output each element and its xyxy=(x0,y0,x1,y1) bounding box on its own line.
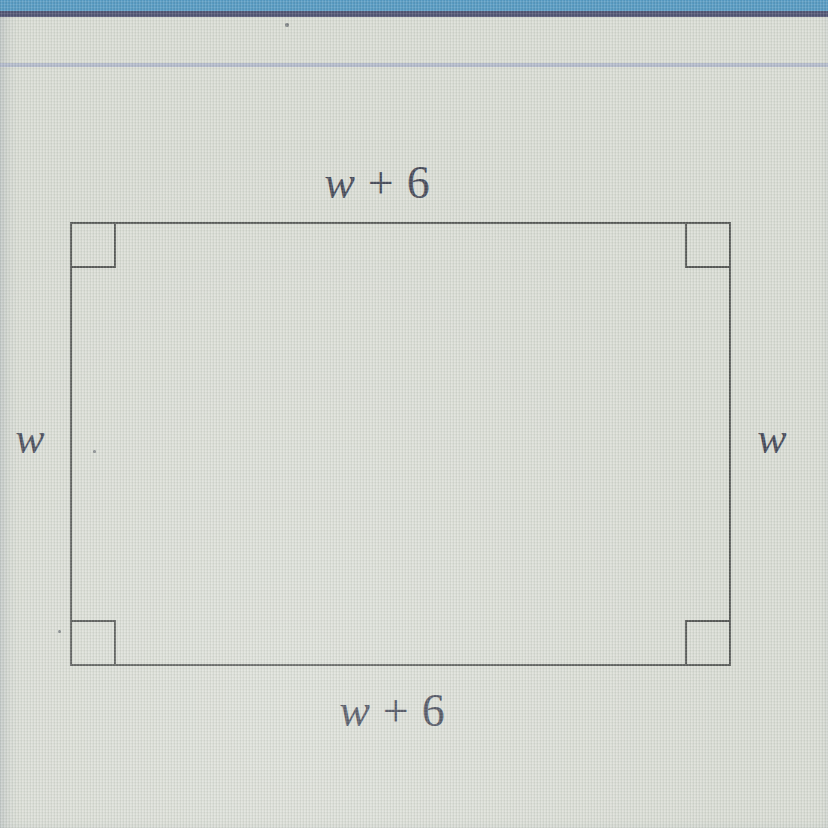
geometry-diagram: w+6 w+6 w w xyxy=(0,0,828,828)
bottom-side-label: w+6 xyxy=(292,688,492,734)
right-angle-marker-top-right xyxy=(685,224,729,268)
right-angle-marker-top-left xyxy=(72,224,116,268)
plus-operator: + xyxy=(368,157,394,208)
plus-operator: + xyxy=(383,685,409,736)
right-angle-marker-bottom-left xyxy=(72,620,116,664)
variable-w: w xyxy=(339,685,370,736)
right-angle-marker-bottom-right xyxy=(685,620,729,664)
dust-speck xyxy=(93,450,96,453)
dust-speck xyxy=(58,630,61,633)
rectangle-shape xyxy=(70,222,731,666)
constant-6: 6 xyxy=(407,157,430,208)
right-side-label: w xyxy=(746,417,798,461)
variable-w: w xyxy=(757,414,786,463)
left-side-label: w xyxy=(4,417,56,461)
top-side-label: w+6 xyxy=(277,160,477,206)
variable-w: w xyxy=(324,157,355,208)
screen: w+6 w+6 w w xyxy=(0,0,828,828)
variable-w: w xyxy=(15,414,44,463)
dust-speck xyxy=(285,23,289,27)
constant-6: 6 xyxy=(422,685,445,736)
